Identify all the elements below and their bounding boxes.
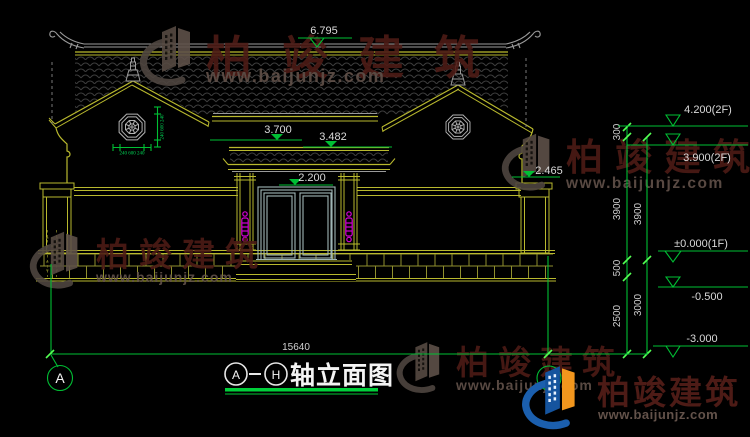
level-porch-top: 3.482 <box>319 131 347 143</box>
brand-site-text: www.baijunjz.com <box>597 407 718 422</box>
title-axis-to: H <box>272 368 281 382</box>
watermark-site-text: www.baijunjz.com <box>565 175 724 192</box>
brand-name-text: 柏竣建筑 <box>597 374 741 411</box>
title-underline <box>225 388 378 392</box>
octagon-dim-h: 240 600 240 <box>120 152 146 157</box>
dim-floor-height-b: 3900 <box>633 202 644 225</box>
dim-below-grade: 2500 <box>612 304 623 327</box>
level-door-top: 2.200 <box>298 172 326 184</box>
elevation-drawing: 柏竣建筑 www.baijunjz.com 柏竣建筑 www.baijunjz.… <box>0 0 750 437</box>
level-floor1: ±0.000(1F) <box>674 238 728 250</box>
cad-elevation-canvas: 柏竣建筑 www.baijunjz.com 柏竣建筑 www.baijunjz.… <box>0 0 750 437</box>
watermark-brand-text: 柏竣建筑 <box>96 236 268 273</box>
octagon-dim-v: 240 600 240 <box>161 114 166 140</box>
watermark-site-text: www.baijunjz.com <box>95 269 233 285</box>
dim-total-width: 15640 <box>282 342 310 353</box>
level-side-eave: 2.465 <box>535 165 563 177</box>
dim-floor-height-a: 3900 <box>612 197 623 220</box>
drawing-title: 轴立面图 <box>290 361 394 390</box>
level-grade: -0.500 <box>691 291 722 303</box>
axis-bubble-label: A <box>55 370 65 386</box>
level-floor2: 3.900(2F) <box>683 152 731 164</box>
level-roof2: 4.200(2F) <box>684 104 732 116</box>
dim-plinth: 500 <box>612 259 623 276</box>
dim-foundation-depth: 3000 <box>633 293 644 316</box>
level-ridge: 6.795 <box>310 25 338 37</box>
level-foundation: -3.000 <box>686 333 717 345</box>
level-main-eave: 3.700 <box>264 124 292 136</box>
watermark-bottom: 柏竣建筑 www.baijunjz.com <box>400 342 624 393</box>
title-axis-from: A <box>232 368 240 382</box>
watermark-site-text: www.baijunjz.com <box>205 66 385 86</box>
porch-tile-field <box>230 151 388 164</box>
